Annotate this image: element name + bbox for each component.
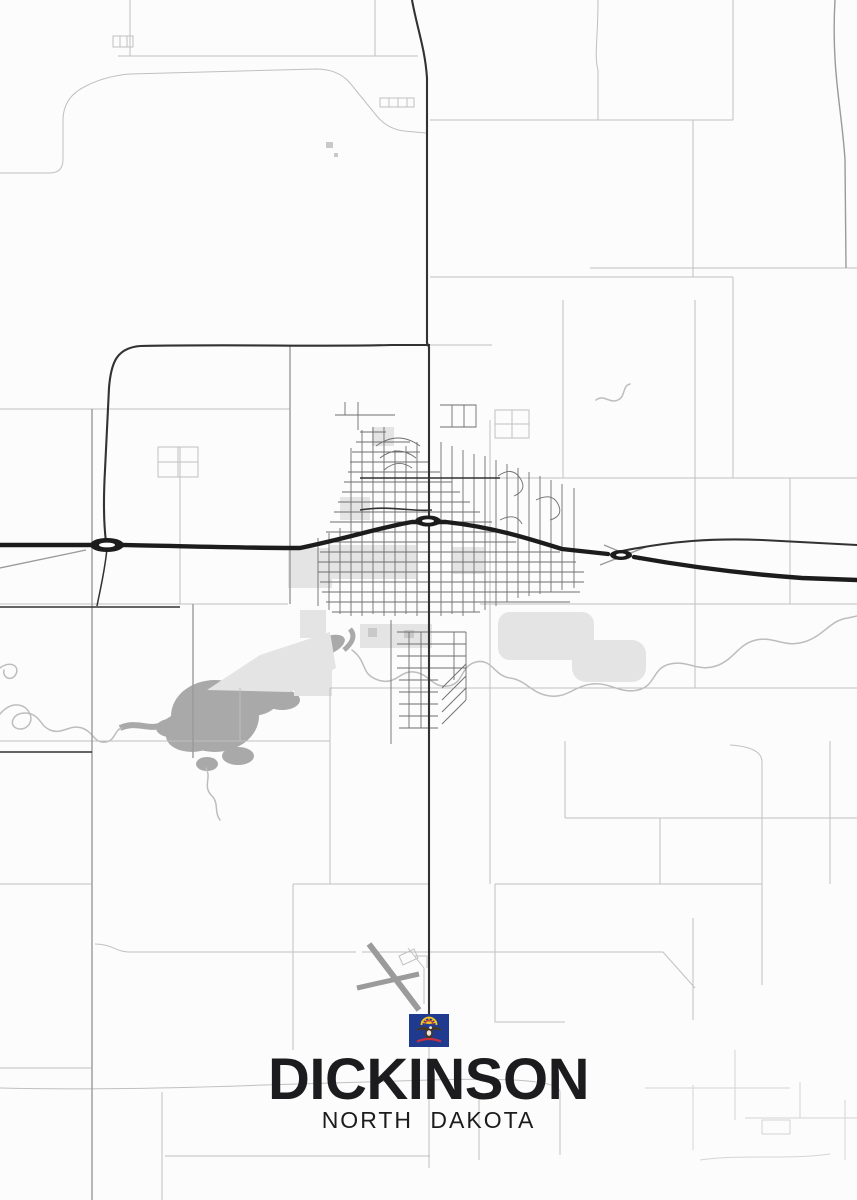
state-name: NORTH DAKOTA [0,1109,857,1132]
map-poster: DICKINSON NORTH DAKOTA [0,0,857,1200]
flag-eagle-head [429,1026,432,1029]
north-dakota-flag-icon [409,1014,449,1047]
flag-eagle-chest [427,1030,431,1036]
city-name: DICKINSON [0,1051,857,1109]
airport-runways [357,944,424,1010]
